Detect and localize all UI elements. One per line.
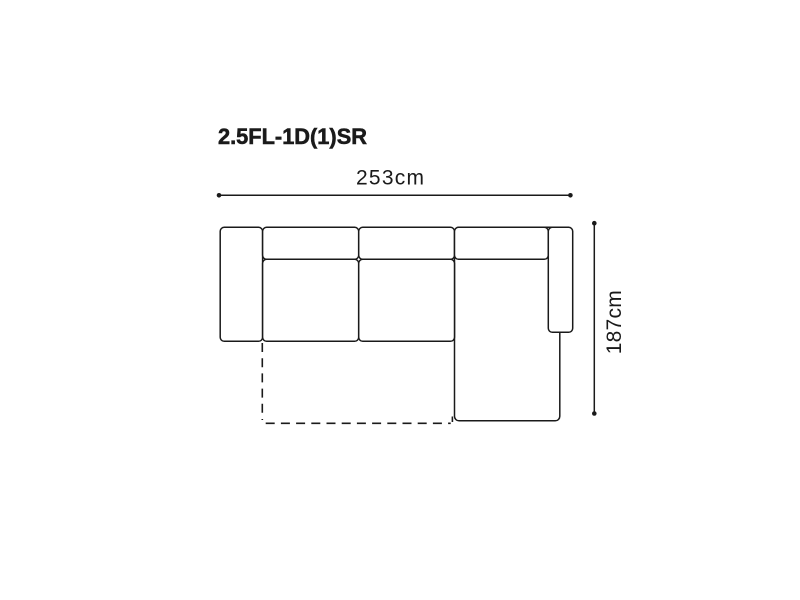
svg-text:2.5FL-1D(1)SR: 2.5FL-1D(1)SR: [218, 124, 367, 149]
svg-text:253cm: 253cm: [356, 167, 424, 190]
svg-text:187cm: 187cm: [603, 290, 626, 354]
